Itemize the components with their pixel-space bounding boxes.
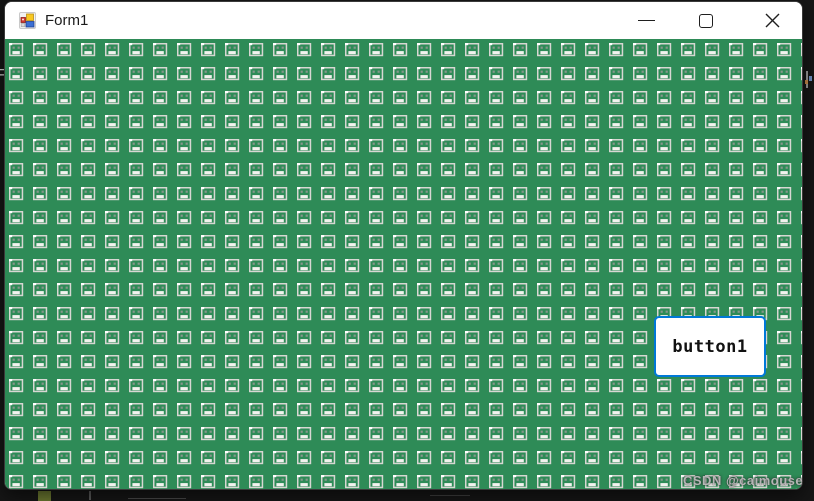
taskbar-fragment (430, 495, 470, 496)
taskbar-fragment (89, 491, 91, 500)
taskbar-fragment (38, 491, 51, 501)
background-color-fragment (809, 76, 812, 81)
titlebar[interactable]: Form1 (5, 2, 802, 39)
minimize-button[interactable] (617, 2, 675, 39)
form1-window: Form1 (4, 1, 803, 490)
background-color-fragment (805, 80, 808, 84)
window-title: Form1 (45, 12, 88, 29)
form-client-area: button1 (5, 39, 802, 489)
tiled-background (5, 39, 802, 489)
close-icon (764, 12, 781, 29)
button1[interactable]: button1 (654, 316, 766, 377)
minimize-icon (638, 20, 655, 21)
maximize-button[interactable] (677, 2, 735, 39)
watermark: CSDN @caimouse (683, 473, 803, 488)
screenshot-stage: F Form1 (0, 0, 814, 501)
winforms-app-icon[interactable] (19, 12, 36, 29)
close-button[interactable] (741, 2, 803, 39)
taskbar-fragment (128, 498, 186, 499)
maximize-icon (699, 14, 713, 28)
